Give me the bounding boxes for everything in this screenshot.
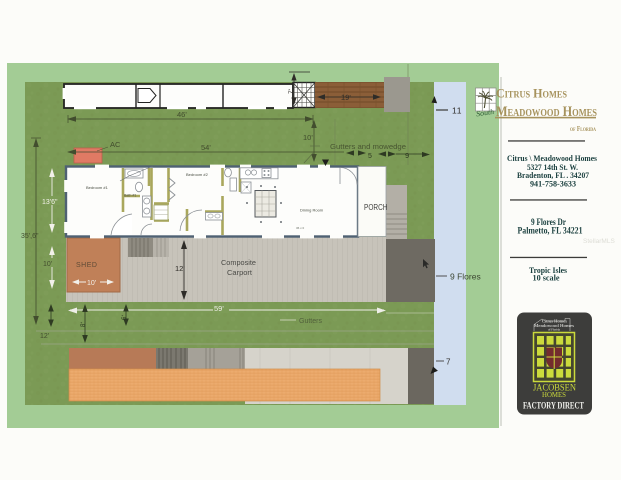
svg-text:46': 46': [177, 110, 187, 119]
svg-text:Bath #1: Bath #1: [124, 194, 136, 198]
svg-text:Composite: Composite: [221, 258, 256, 267]
svg-text:HOMES: HOMES: [542, 392, 566, 399]
svg-text:10': 10': [43, 261, 52, 268]
svg-text:Carport: Carport: [227, 268, 253, 277]
svg-text:10 scale: 10 scale: [533, 273, 560, 283]
svg-text:9: 9: [405, 151, 409, 160]
svg-text:Bedroom #1: Bedroom #1: [86, 185, 109, 190]
svg-text:SHED: SHED: [76, 262, 97, 269]
svg-text:FACTORY DIRECT: FACTORY DIRECT: [523, 401, 584, 411]
svg-text:7': 7': [288, 89, 295, 94]
svg-text:Dining Room: Dining Room: [300, 208, 324, 213]
svg-text:AC: AC: [110, 140, 121, 149]
svg-text:12': 12': [175, 264, 185, 273]
svg-text:Palmetto, FL 34221: Palmetto, FL 34221: [518, 226, 583, 236]
svg-text:59': 59': [214, 304, 224, 313]
svg-text:10': 10': [87, 280, 96, 287]
svg-text:JACOBSEN: JACOBSEN: [533, 383, 576, 393]
svg-text:10': 10': [303, 133, 313, 142]
svg-text:7: 7: [446, 358, 451, 367]
svg-text:Gutters and mowedge: Gutters and mowedge: [330, 142, 406, 151]
svg-text:Citrus Homes: Citrus Homes: [496, 86, 567, 101]
svg-text:PORCH: PORCH: [364, 203, 388, 212]
svg-text:5: 5: [368, 153, 372, 160]
svg-text:11: 11: [452, 106, 462, 116]
svg-text:9 Flores: 9 Flores: [450, 272, 481, 282]
svg-text:13'6": 13'6": [42, 199, 58, 206]
svg-text:36 x 0: 36 x 0: [296, 226, 305, 230]
svg-text:941-758-3633: 941-758-3633: [530, 178, 577, 188]
svg-text:StellarMLS: StellarMLS: [583, 238, 615, 245]
svg-text:of Florida: of Florida: [548, 328, 561, 332]
svg-text:54': 54': [201, 143, 211, 152]
svg-text:35',6": 35',6": [21, 233, 39, 240]
svg-text:Gutters: Gutters: [299, 318, 322, 325]
svg-text:12': 12': [40, 333, 49, 340]
svg-text:19': 19': [341, 93, 352, 103]
svg-text:of Florida: of Florida: [570, 125, 596, 133]
svg-text:Bedroom #2: Bedroom #2: [186, 172, 209, 177]
